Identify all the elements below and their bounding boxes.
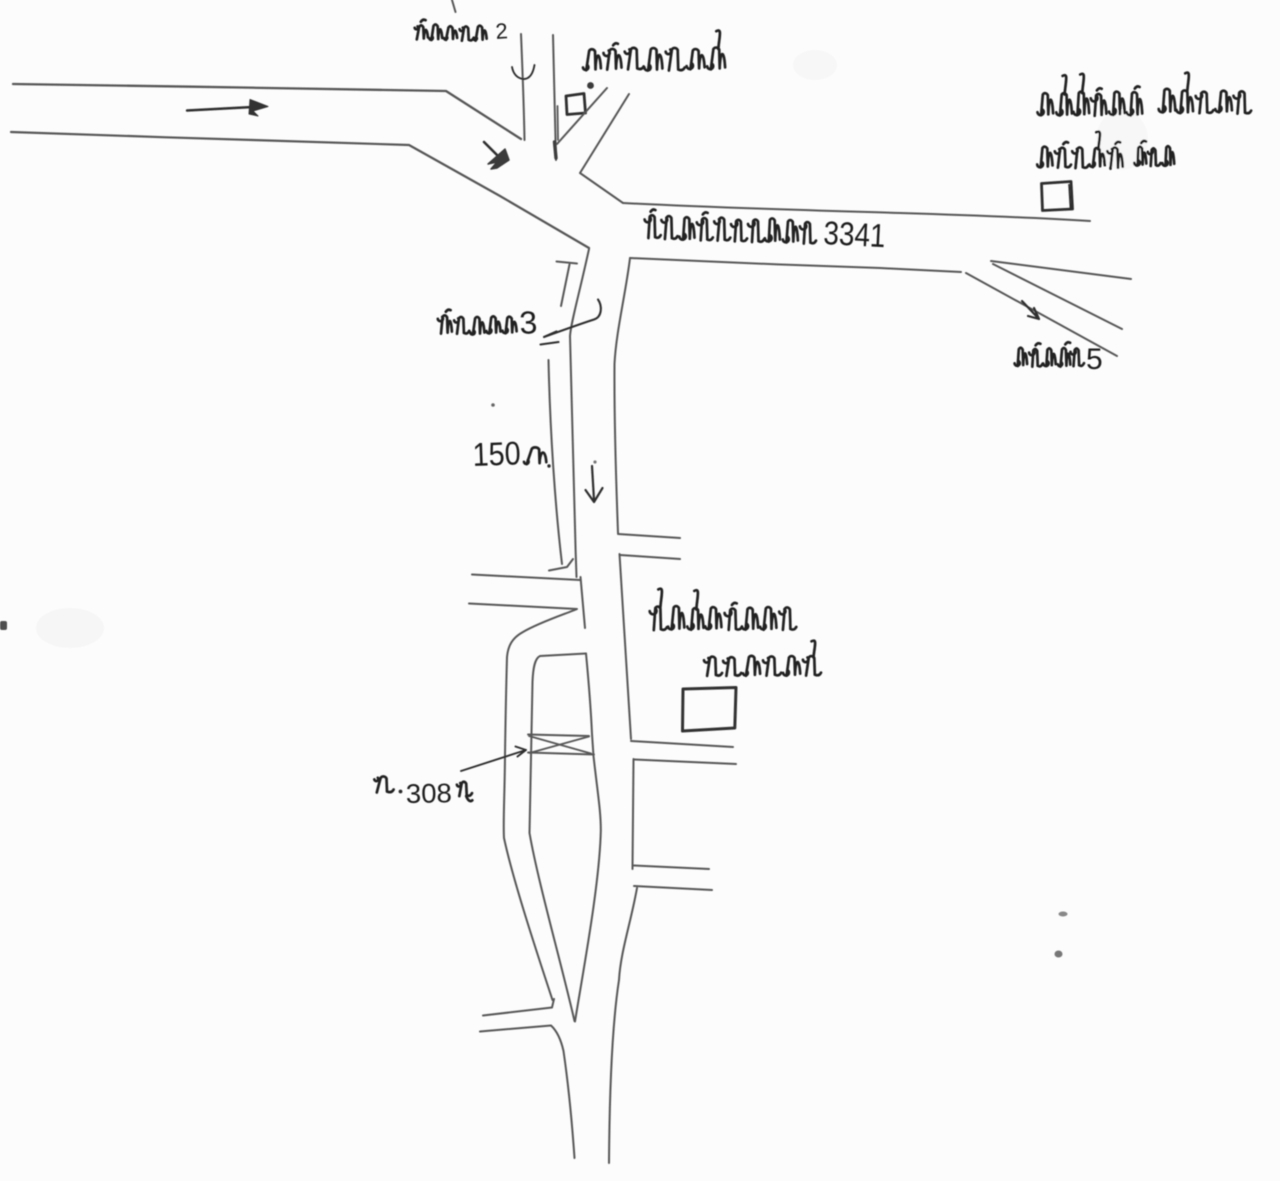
- svg-text:5: 5: [1086, 343, 1103, 376]
- svg-text:150: 150: [472, 434, 521, 473]
- svg-text:3341: 3341: [823, 214, 887, 254]
- svg-text:2: 2: [495, 18, 509, 44]
- svg-text:3: 3: [518, 304, 538, 341]
- svg-text:308: 308: [406, 778, 453, 809]
